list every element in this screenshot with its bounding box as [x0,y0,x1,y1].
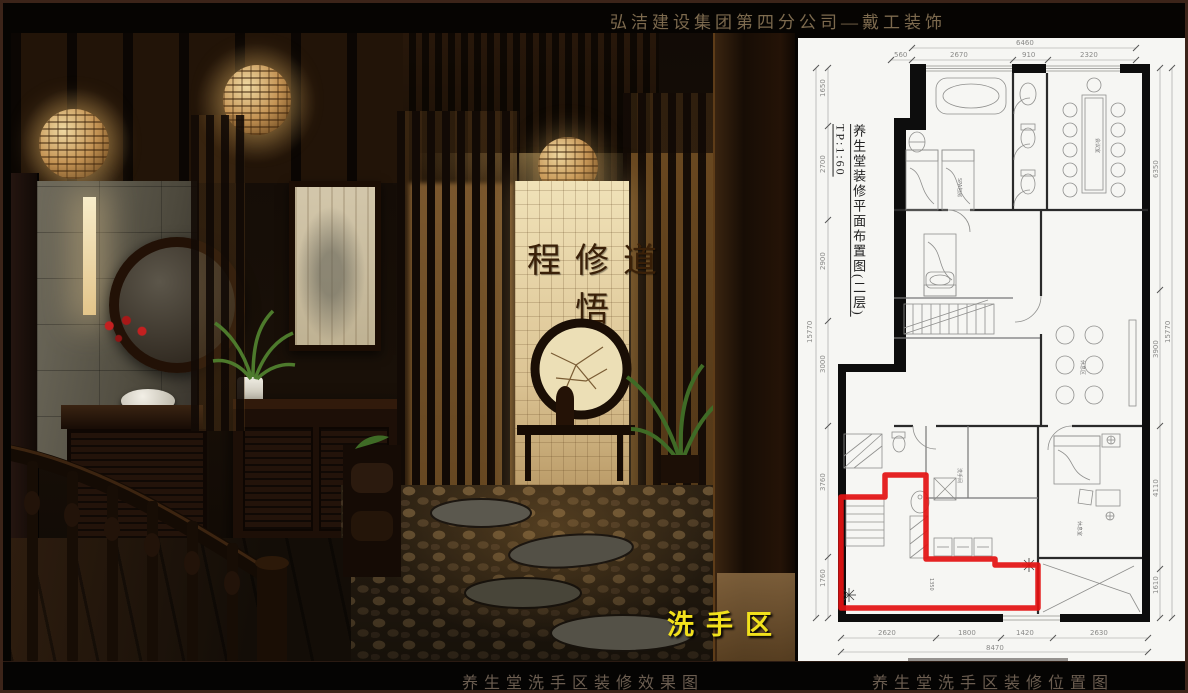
washroom-highlight-label: 洗手区 [667,603,795,642]
dimensions-left: 15770 1650 2700 2900 3000 3760 1760 [806,65,831,621]
dimensions-right: 6350 3900 4110 1610 15770 [1152,65,1175,621]
svg-text:2620: 2620 [878,629,896,637]
plan-title-text: 养生堂装修平面布置图(二层) [851,124,866,317]
plan-scale-text: TP:1:60 [834,124,848,177]
presentation-board: 弘洁建设集团第四分公司—戴工装饰 [0,0,1188,693]
stepping-stones [431,499,695,651]
svg-text:3000: 3000 [819,355,827,373]
svg-text:1650: 1650 [819,79,827,97]
floor-plan-panel: 养生堂装修平面布置图(二层) TP:1:60 6460 560 2670 910… [798,38,1188,663]
svg-text:2630: 2630 [1090,629,1108,637]
plant-left [213,311,295,379]
svg-text:8470: 8470 [986,644,1004,652]
plant-right [627,365,721,483]
moon-window [535,323,627,415]
interior-render-photo: 程修道悟 [11,33,795,663]
left-caption: 养生堂洗手区装修效果图 [383,669,783,693]
svg-text:15770: 15770 [806,321,814,343]
svg-text:560: 560 [894,51,907,59]
svg-text:洗手间: 洗手间 [956,468,963,483]
svg-text:910: 910 [1022,51,1035,59]
svg-text:2320: 2320 [1080,51,1098,59]
dimensions-bottom: 2620 1800 1420 2630 8470 [838,629,1151,661]
room-labels: SPA包房 会议室 休息区 休息室 洗手间 1350 [928,138,1101,591]
svg-text:SPA包房: SPA包房 [956,178,963,197]
svg-text:2670: 2670 [950,51,968,59]
svg-text:1610: 1610 [1152,576,1160,594]
svg-text:休息室: 休息室 [1076,521,1083,536]
stair-railing [11,445,289,663]
photo-overlay [11,33,795,663]
plan-title-vertical: 养生堂装修平面布置图(二层) TP:1:60 [832,124,867,374]
svg-text:休息区: 休息区 [1079,360,1086,375]
svg-text:1760: 1760 [819,569,827,587]
svg-text:3900: 3900 [1152,340,1160,358]
svg-text:1420: 1420 [1016,629,1034,637]
right-caption: 养生堂洗手区装修位置图 [803,669,1183,693]
svg-text:15770: 15770 [1164,321,1172,343]
dimensions-top: 6460 560 2670 910 2320 [888,39,1139,63]
svg-text:会议室: 会议室 [1094,138,1101,153]
svg-text:3760: 3760 [819,473,827,491]
svg-text:2900: 2900 [819,252,827,270]
svg-text:1800: 1800 [958,629,976,637]
svg-text:2700: 2700 [819,155,827,173]
svg-text:6460: 6460 [1016,39,1034,47]
fixtures [842,78,1140,612]
wood-pillar [713,33,795,663]
svg-text:6350: 6350 [1152,160,1160,178]
svg-text:4110: 4110 [1152,479,1160,497]
svg-text:1350: 1350 [928,578,934,591]
corner-shelf [343,436,401,578]
company-title: 弘洁建设集团第四分公司—戴工装饰 [563,8,993,33]
